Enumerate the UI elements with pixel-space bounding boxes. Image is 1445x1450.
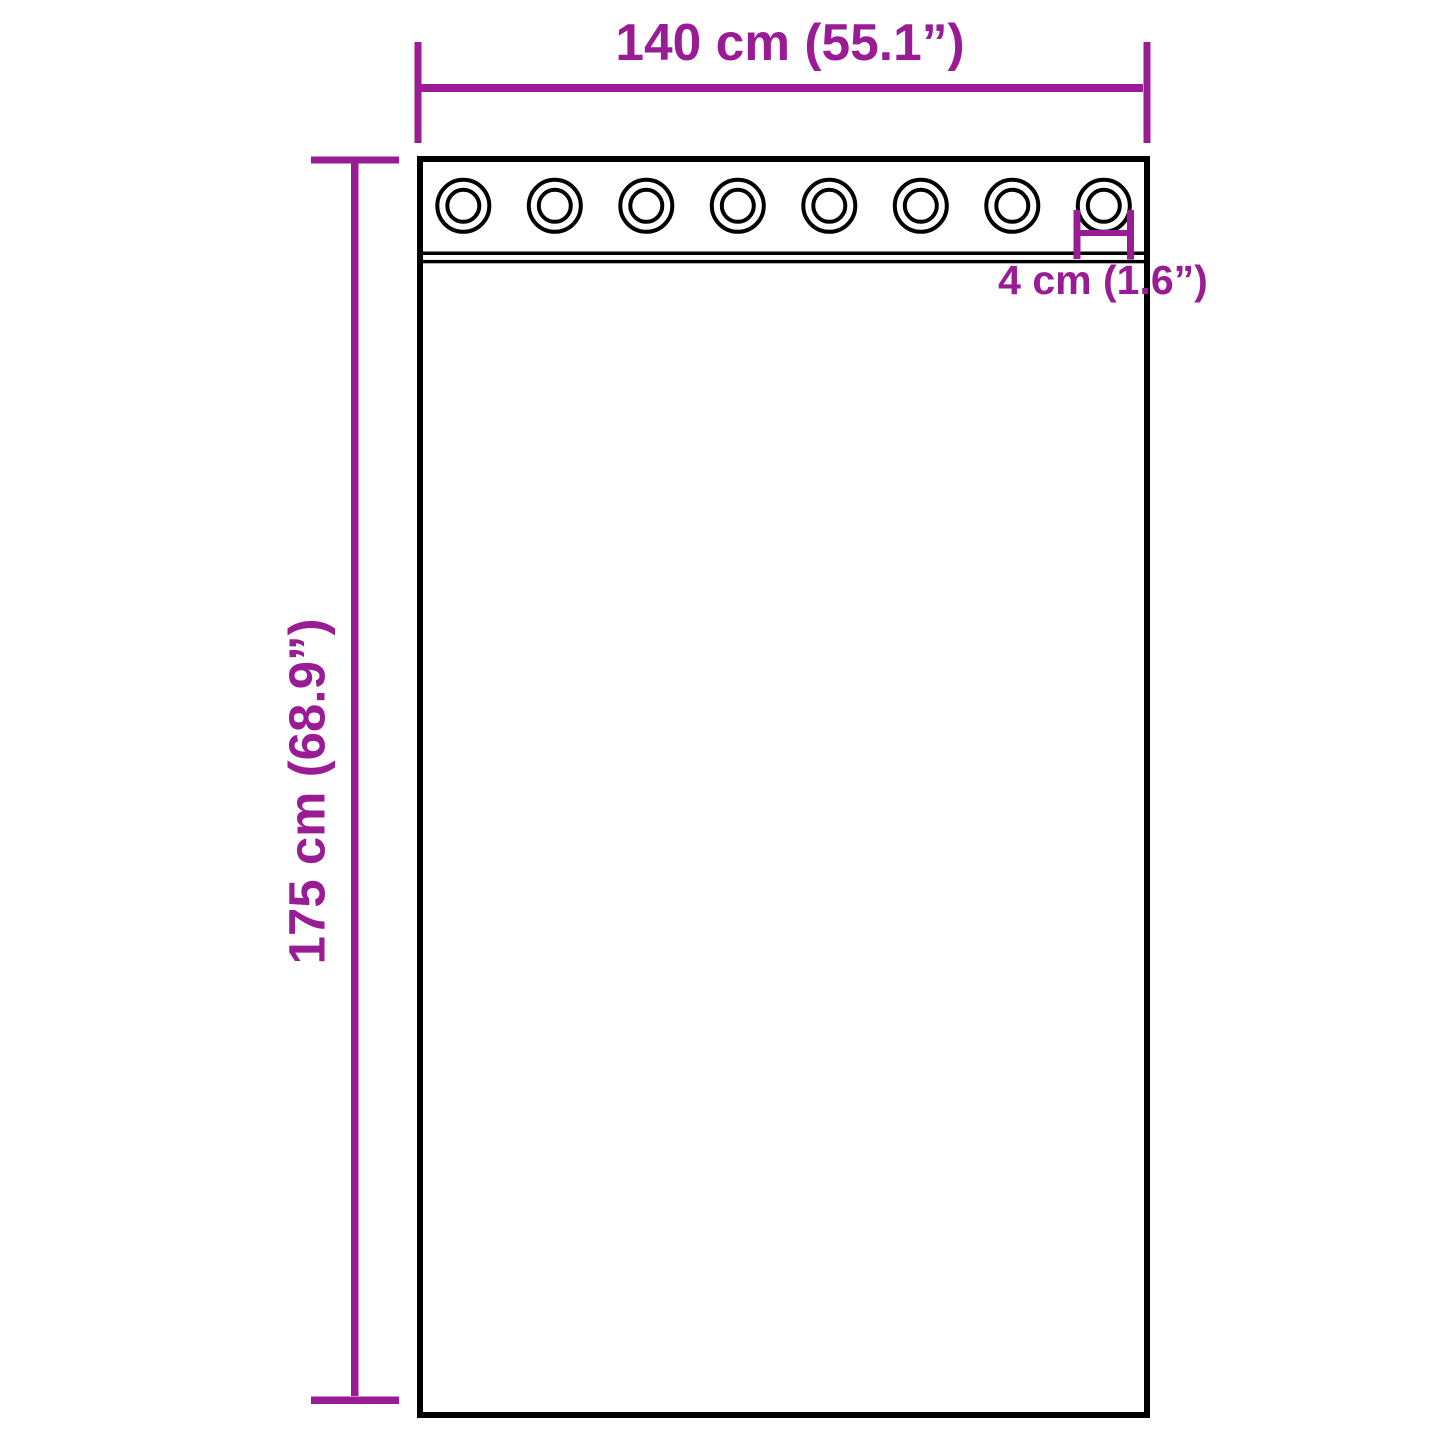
svg-text:140 cm (55.1”): 140 cm (55.1”) bbox=[615, 13, 964, 71]
svg-text:175 cm (68.9”): 175 cm (68.9”) bbox=[279, 619, 336, 965]
svg-text:4 cm (1.6”): 4 cm (1.6”) bbox=[998, 257, 1208, 303]
